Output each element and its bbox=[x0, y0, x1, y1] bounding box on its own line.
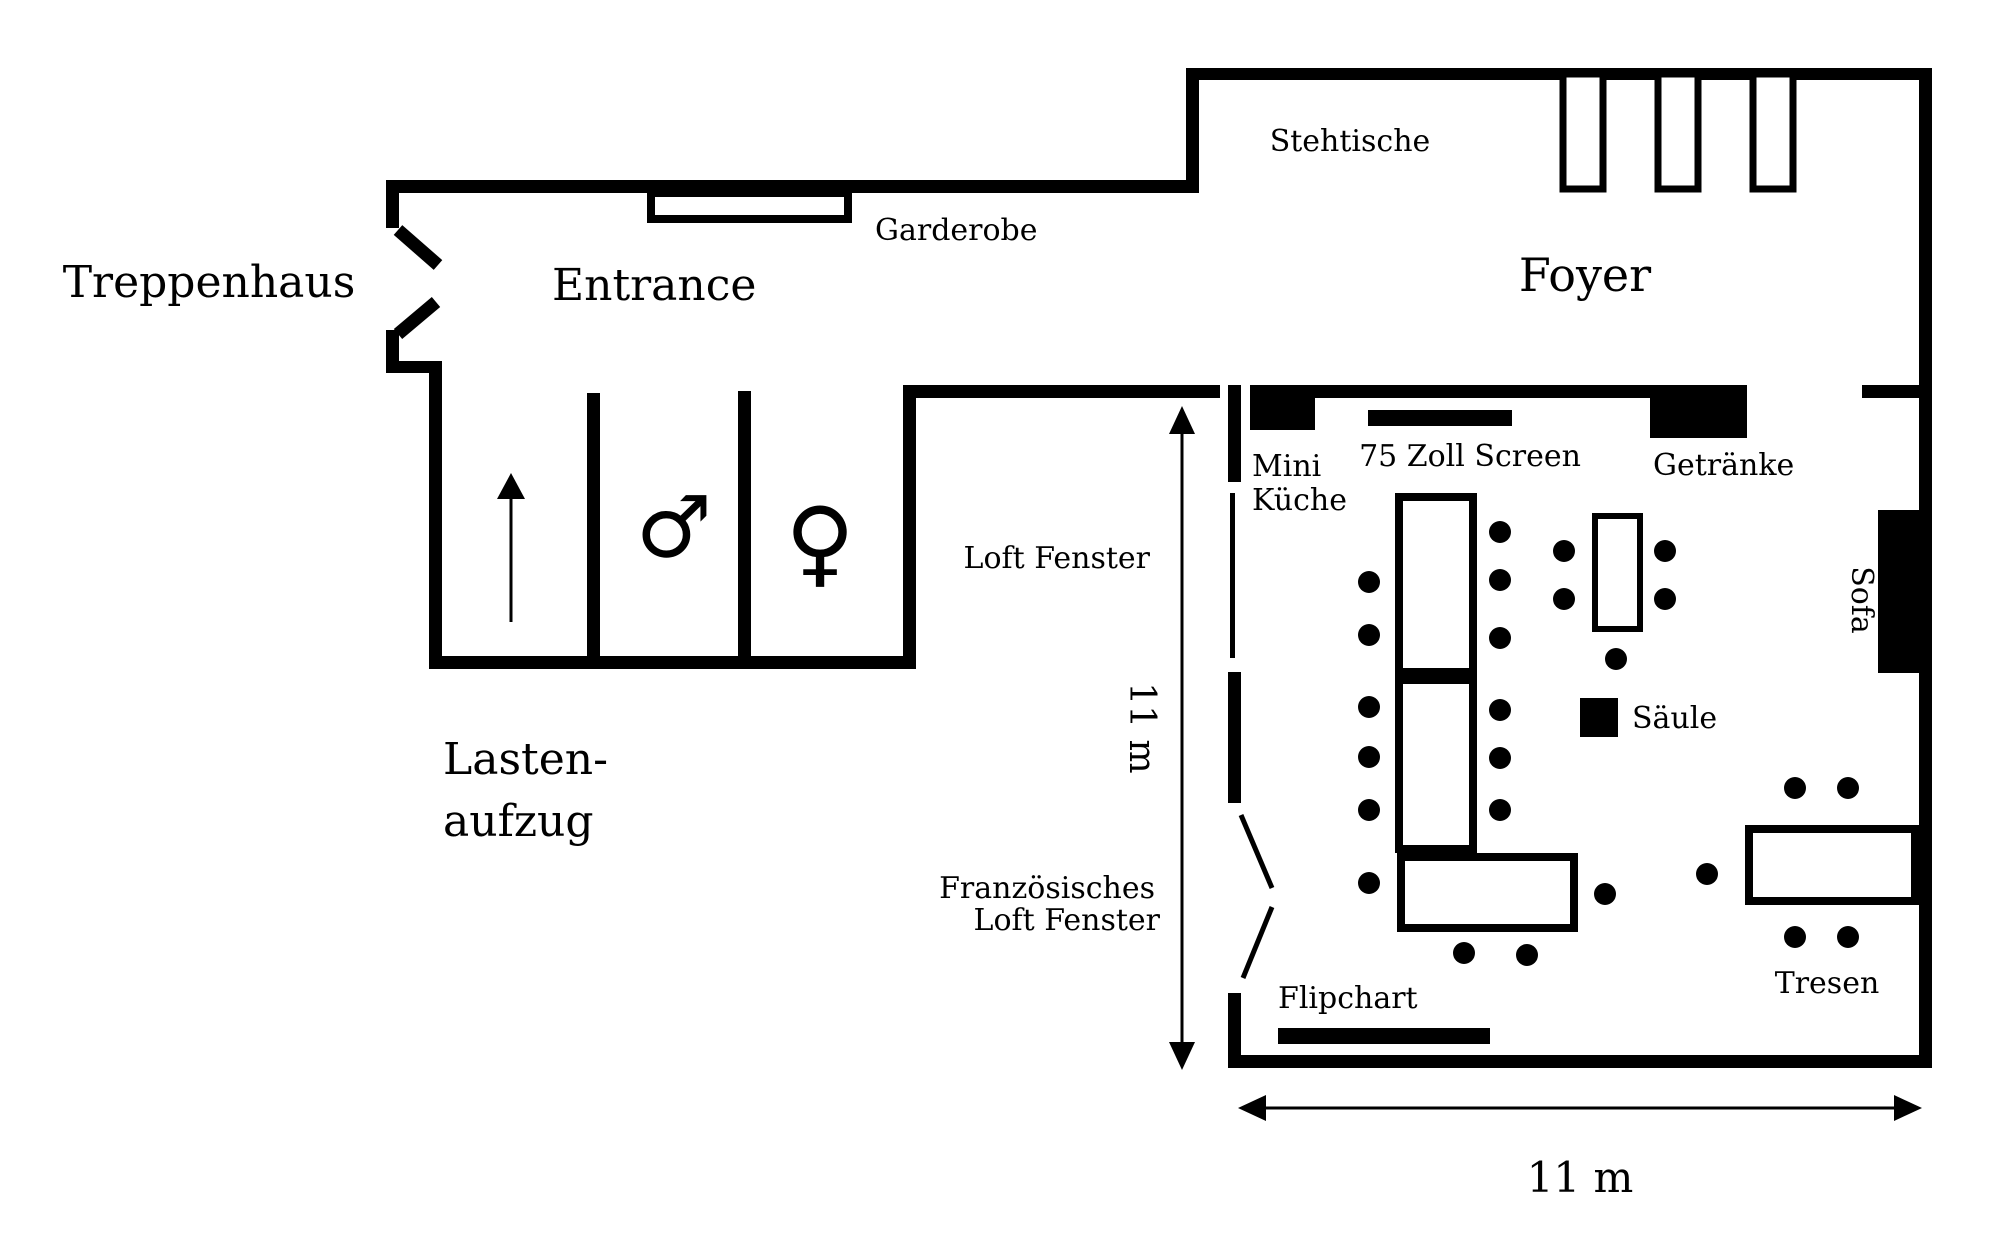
male-icon: ♂ bbox=[636, 479, 712, 578]
chair-dot bbox=[1358, 624, 1380, 646]
chair-dot bbox=[1654, 540, 1676, 562]
tresen-table bbox=[1749, 829, 1915, 901]
mini-kueche-label-line2: Küche bbox=[1252, 483, 1347, 518]
chair-dot bbox=[1784, 926, 1806, 948]
getraenke-label: Getränke bbox=[1653, 448, 1794, 483]
horizontal-dimension-arrow bbox=[1238, 1095, 1922, 1121]
screen-bar bbox=[1368, 410, 1512, 426]
chair-dot bbox=[1594, 883, 1616, 905]
h-dim-head-right-icon bbox=[1894, 1095, 1922, 1121]
chair-dot bbox=[1837, 926, 1859, 948]
h-dim-head-left-icon bbox=[1238, 1095, 1266, 1121]
vertical-dimension-arrow bbox=[1169, 406, 1195, 1070]
bottom-table bbox=[1401, 857, 1574, 928]
room-bottom-wall bbox=[1228, 1055, 1932, 1068]
chair-dot bbox=[1358, 696, 1380, 718]
chair-dot bbox=[1358, 799, 1380, 821]
screen-label: 75 Zoll Screen bbox=[1359, 439, 1581, 474]
chair-dot bbox=[1553, 540, 1575, 562]
elevator-arrow-head-icon bbox=[497, 473, 525, 499]
stehtisch-2 bbox=[1658, 74, 1698, 189]
horizontal-dimension-label: 11 m bbox=[1527, 1153, 1634, 1202]
flipchart-bar bbox=[1278, 1028, 1490, 1044]
chair-dot bbox=[1553, 588, 1575, 610]
long-table-lower bbox=[1399, 680, 1473, 849]
foyer-furniture bbox=[651, 74, 1793, 219]
chair-dot bbox=[1489, 747, 1511, 769]
chair-dot bbox=[1784, 777, 1806, 799]
chair-dot bbox=[1358, 571, 1380, 593]
saeule-column bbox=[1580, 698, 1618, 737]
treppenhaus-wall-upper bbox=[386, 180, 399, 228]
french-window-door-leaf-upper bbox=[1241, 815, 1272, 888]
sofa-block bbox=[1878, 510, 1920, 673]
flipchart-label: Flipchart bbox=[1278, 981, 1418, 1016]
female-icon: ♀ bbox=[785, 488, 855, 598]
lastenaufzug-label-line2: aufzug bbox=[443, 796, 594, 847]
chair-dot bbox=[1489, 799, 1511, 821]
chair-dot bbox=[1489, 699, 1511, 721]
right-outer-wall bbox=[1919, 68, 1932, 1068]
treppenhaus-label: Treppenhaus bbox=[63, 257, 356, 308]
getraenke-block bbox=[1650, 385, 1747, 438]
chair-dot bbox=[1837, 777, 1859, 799]
v-dim-head-up-icon bbox=[1169, 406, 1195, 434]
foyer-room-wall-a bbox=[910, 385, 1220, 398]
tresen-label: Tresen bbox=[1775, 966, 1880, 1001]
franz-loft-fenster-label-line2: Loft Fenster bbox=[974, 903, 1161, 938]
mini-kueche-block bbox=[1250, 385, 1315, 430]
treppenhaus-door-jamb-lower bbox=[398, 302, 436, 334]
chair-dot bbox=[1358, 872, 1380, 894]
wc-right-wall bbox=[903, 385, 916, 669]
foyer-step-wall bbox=[1186, 68, 1199, 193]
french-window-door-leaf-lower bbox=[1243, 907, 1272, 978]
wc-divider-2 bbox=[738, 391, 751, 656]
chair-dot bbox=[1654, 588, 1676, 610]
loft-window-line bbox=[1230, 493, 1235, 658]
stehtische-label: Stehtische bbox=[1270, 124, 1431, 159]
floor-plan-page: Treppenhaus Entrance Foyer Lasten- aufzu… bbox=[0, 0, 2000, 1251]
foyer-top-wall bbox=[1186, 68, 1932, 80]
garderobe-rect bbox=[651, 193, 848, 219]
loft-fenster-label: Loft Fenster bbox=[964, 541, 1151, 576]
entrance-label: Entrance bbox=[552, 260, 756, 311]
wc-bottom-wall bbox=[429, 656, 916, 669]
sofa-label: Sofa bbox=[1844, 566, 1879, 634]
stehtisch-3 bbox=[1753, 74, 1793, 189]
chair-dot bbox=[1489, 569, 1511, 591]
vertical-dimension-label: 11 m bbox=[1121, 682, 1162, 773]
standing-table bbox=[1595, 516, 1640, 629]
stehtisch-1 bbox=[1563, 74, 1603, 189]
franz-loft-fenster-label-line1: Französisches bbox=[939, 871, 1155, 906]
garderobe-label: Garderobe bbox=[875, 213, 1038, 248]
chair-dot bbox=[1453, 942, 1475, 964]
foyer-room-wall-c bbox=[1862, 385, 1920, 398]
v-dim-head-down-icon bbox=[1169, 1042, 1195, 1070]
chair-dot bbox=[1516, 944, 1538, 966]
chair-dot bbox=[1358, 746, 1380, 768]
chair-dot bbox=[1489, 521, 1511, 543]
foyer-label: Foyer bbox=[1519, 248, 1651, 302]
long-table-upper bbox=[1399, 497, 1473, 672]
saeule-label: Säule bbox=[1632, 701, 1717, 736]
room-left-wall-upper bbox=[1228, 385, 1241, 482]
wc-left-wall bbox=[429, 361, 442, 668]
lastenaufzug-label-line1: Lasten- bbox=[443, 734, 608, 785]
floor-plan-svg: Treppenhaus Entrance Foyer Lasten- aufzu… bbox=[0, 0, 2000, 1251]
elevator-up-arrow bbox=[497, 473, 525, 622]
room-left-wall-middle bbox=[1228, 672, 1241, 803]
chair-dot bbox=[1605, 648, 1627, 670]
wc-divider-1 bbox=[587, 393, 600, 656]
mini-kueche-label-line1: Mini bbox=[1252, 449, 1321, 484]
treppenhaus-door-jamb-upper bbox=[398, 230, 438, 265]
main-room-furniture bbox=[1250, 385, 1920, 1044]
chair-dot bbox=[1489, 627, 1511, 649]
chair-dot bbox=[1696, 863, 1718, 885]
